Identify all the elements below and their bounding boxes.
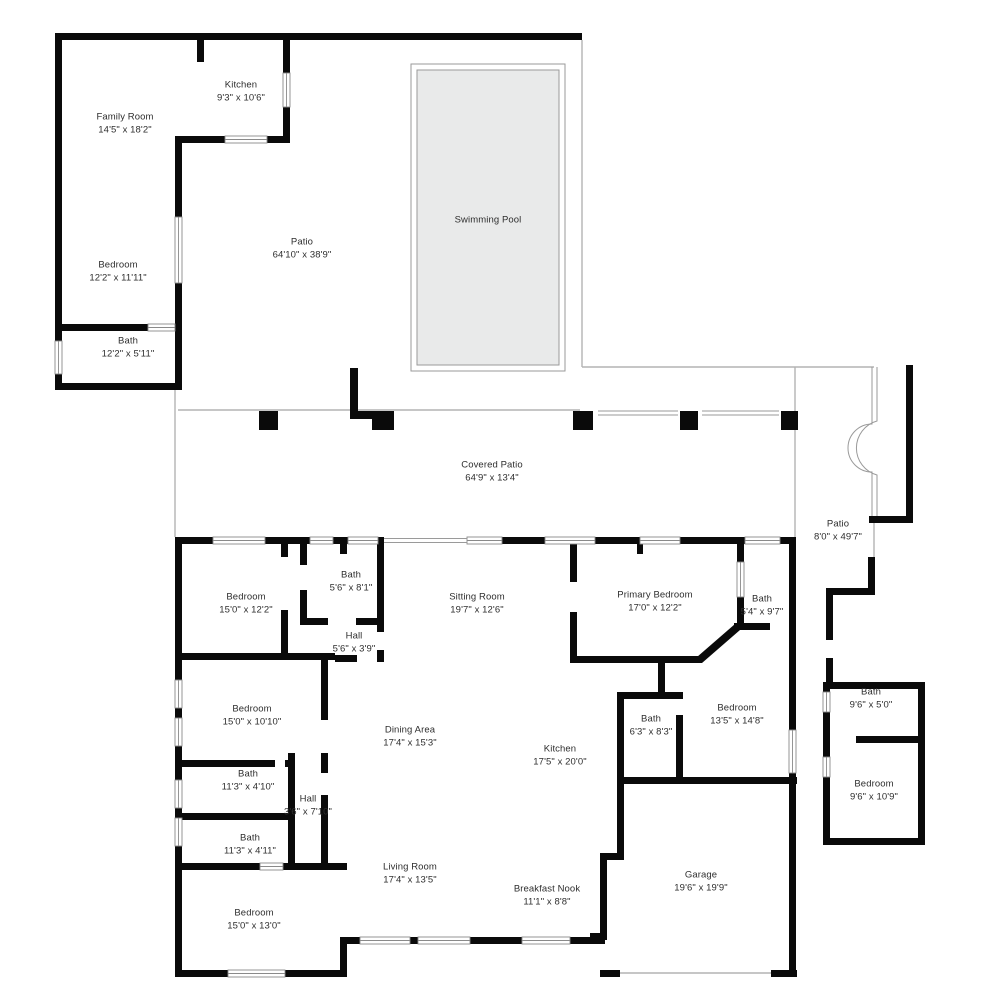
room-label-bedroom-e: Bedroom9'6" x 10'9": [850, 778, 898, 803]
room-label-primary-bedroom: Primary Bedroom17'0" x 12'2": [617, 589, 692, 614]
room-label-covered-patio: Covered Patio64'9" x 13'4": [461, 459, 523, 484]
room-label-garage: Garage19'6" x 19'9": [674, 869, 727, 894]
room-label-bedroom-nw: Bedroom15'0" x 12'2": [219, 591, 272, 616]
room-label-kitchen-main: Kitchen17'5" x 20'0": [533, 743, 586, 768]
room-label-bedroom-c: Bedroom13'5" x 14'8": [710, 702, 763, 727]
room-label-bedroom-w: Bedroom15'0" x 10'10": [223, 703, 282, 728]
room-label-bath-small-n: Bath5'6" x 8'1": [330, 569, 373, 594]
room-label-bedroom-upper: Bedroom12'2" x 11'11": [89, 259, 146, 284]
room-label-living-room: Living Room17'4" x 13'5": [383, 861, 437, 886]
patio-arch-niche: [848, 367, 877, 523]
room-label-hall-w: Hall3'6" x 7'10": [284, 793, 332, 818]
walls-east-suite: [823, 365, 925, 845]
room-label-family-room: Family Room14'5" x 18'2": [96, 111, 153, 136]
room-label-patio-side: Patio8'0" x 49'7": [814, 518, 862, 543]
floor-plan-drawing: .w{fill:#0a0a0a;} .tl{stroke:#b3b3b3;str…: [0, 0, 989, 1000]
room-label-bath-upper: Bath12'2" x 5'11": [102, 335, 155, 360]
floor-plan: .w{fill:#0a0a0a;} .tl{stroke:#b3b3b3;str…: [0, 0, 989, 1000]
room-label-primary-bath: Bath5'4" x 9'7": [741, 593, 784, 618]
room-label-bath-w2: Bath11'3" x 4'11": [224, 832, 276, 857]
room-label-kitchen-upper: Kitchen9'3" x 10'6": [217, 79, 265, 104]
room-label-swimming-pool: Swimming Pool: [455, 215, 522, 228]
room-label-dining-area: Dining Area17'4" x 15'3": [383, 724, 436, 749]
room-label-sitting-room: Sitting Room19'7" x 12'6": [449, 591, 505, 616]
room-label-bedroom-sw: Bedroom15'0" x 13'0": [227, 907, 280, 932]
room-label-bath-c: Bath6'3" x 8'3": [630, 713, 673, 738]
room-label-breakfast-nook: Breakfast Nook11'1" x 8'8": [514, 883, 580, 908]
room-label-hall-n: Hall5'6" x 3'9": [333, 630, 376, 655]
room-label-bath-w1: Bath11'3" x 4'10": [222, 768, 275, 793]
room-label-bath-e: Bath9'6" x 5'0": [850, 686, 893, 711]
room-label-patio-main: Patio64'10" x 38'9": [273, 236, 332, 261]
patio-pillars: [259, 368, 798, 430]
